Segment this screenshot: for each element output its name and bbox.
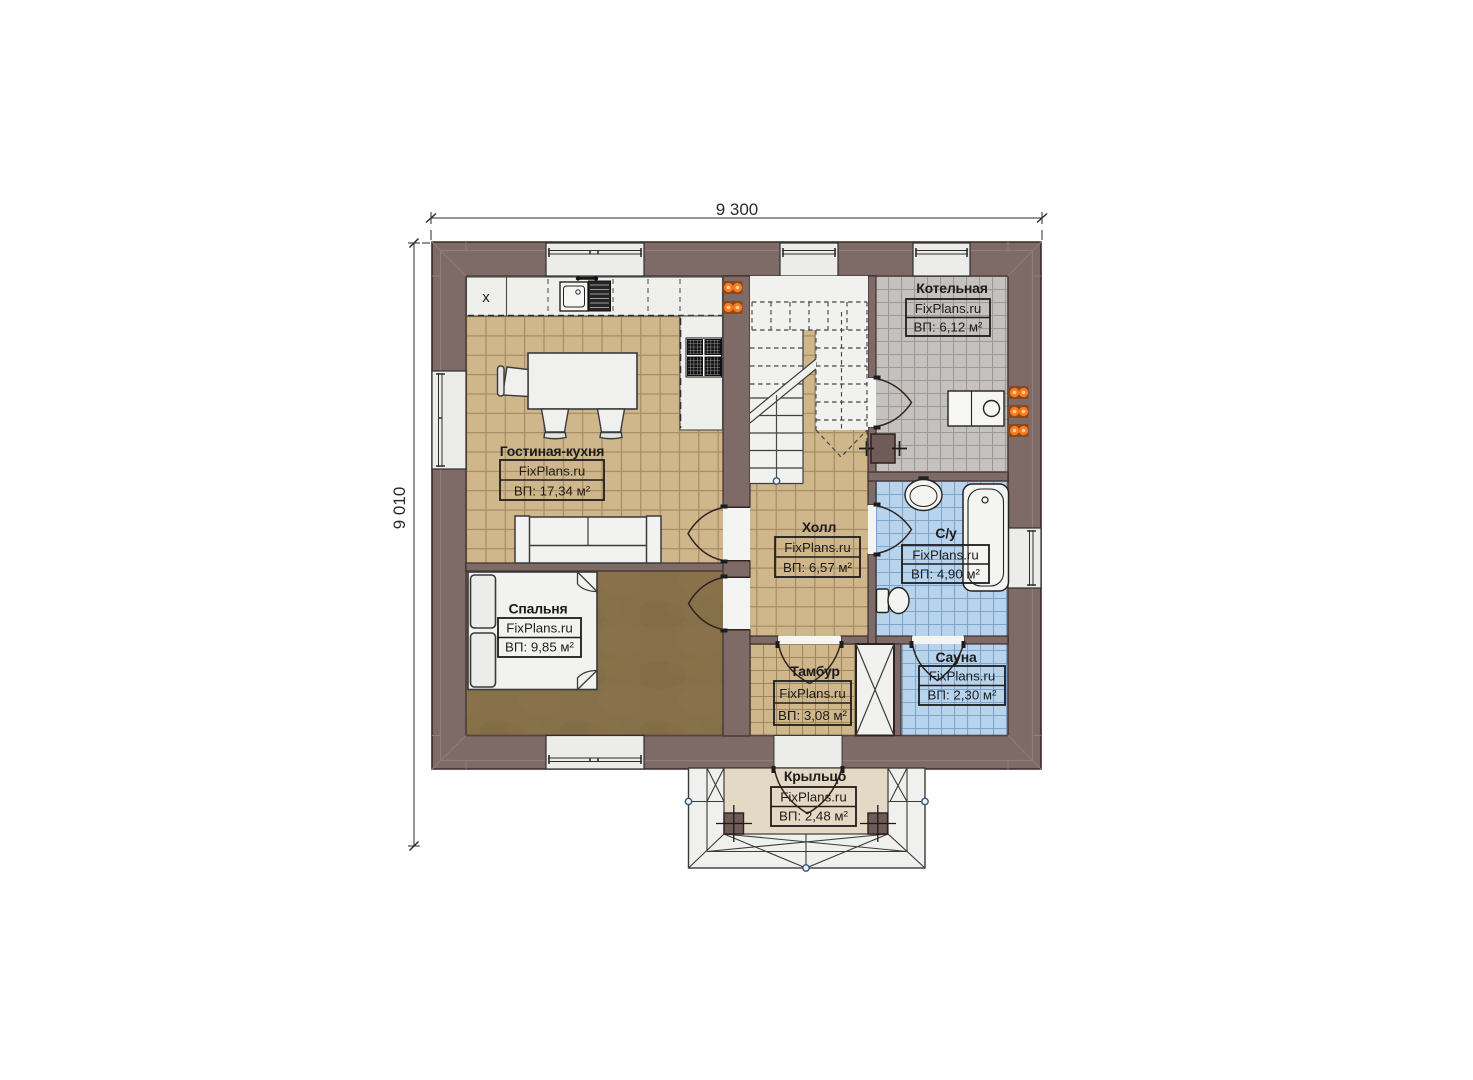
svg-text:Сауна: Сауна (935, 649, 977, 665)
svg-text:Котельная: Котельная (916, 280, 988, 296)
svg-text:FixPlans.ru: FixPlans.ru (506, 621, 573, 636)
svg-text:Гостиная-кухня: Гостиная-кухня (500, 443, 605, 459)
svg-text:FixPlans.ru: FixPlans.ru (784, 540, 851, 555)
svg-text:Холл: Холл (802, 519, 836, 535)
svg-text:Тамбур: Тамбур (790, 663, 840, 679)
svg-text:FixPlans.ru: FixPlans.ru (915, 301, 982, 316)
svg-text:ВП: 9,85 м²: ВП: 9,85 м² (505, 640, 575, 655)
svg-text:9 300: 9 300 (716, 200, 759, 219)
svg-text:FixPlans.ru: FixPlans.ru (780, 790, 847, 805)
svg-text:ВП: 3,08 м²: ВП: 3,08 м² (778, 708, 848, 723)
svg-text:Спальня: Спальня (508, 601, 567, 617)
svg-text:FixPlans.ru: FixPlans.ru (912, 548, 979, 563)
svg-text:С/у: С/у (935, 525, 957, 541)
svg-text:ВП: 2,30 м²: ВП: 2,30 м² (928, 688, 998, 703)
svg-text:ВП: 6,12 м²: ВП: 6,12 м² (914, 320, 984, 335)
svg-text:FixPlans.ru: FixPlans.ru (779, 686, 846, 701)
svg-text:ВП: 4,90 м²: ВП: 4,90 м² (911, 567, 981, 582)
svg-text:Крыльцо: Крыльцо (784, 768, 846, 784)
svg-text:FixPlans.ru: FixPlans.ru (929, 669, 996, 684)
svg-text:FixPlans.ru: FixPlans.ru (519, 464, 586, 479)
svg-text:x: x (482, 289, 490, 306)
svg-text:ВП: 17,34 м²: ВП: 17,34 м² (514, 484, 591, 499)
svg-text:9 010: 9 010 (390, 487, 409, 530)
svg-text:ВП: 6,57 м²: ВП: 6,57 м² (783, 560, 853, 575)
svg-text:ВП: 2,48 м²: ВП: 2,48 м² (779, 809, 849, 824)
